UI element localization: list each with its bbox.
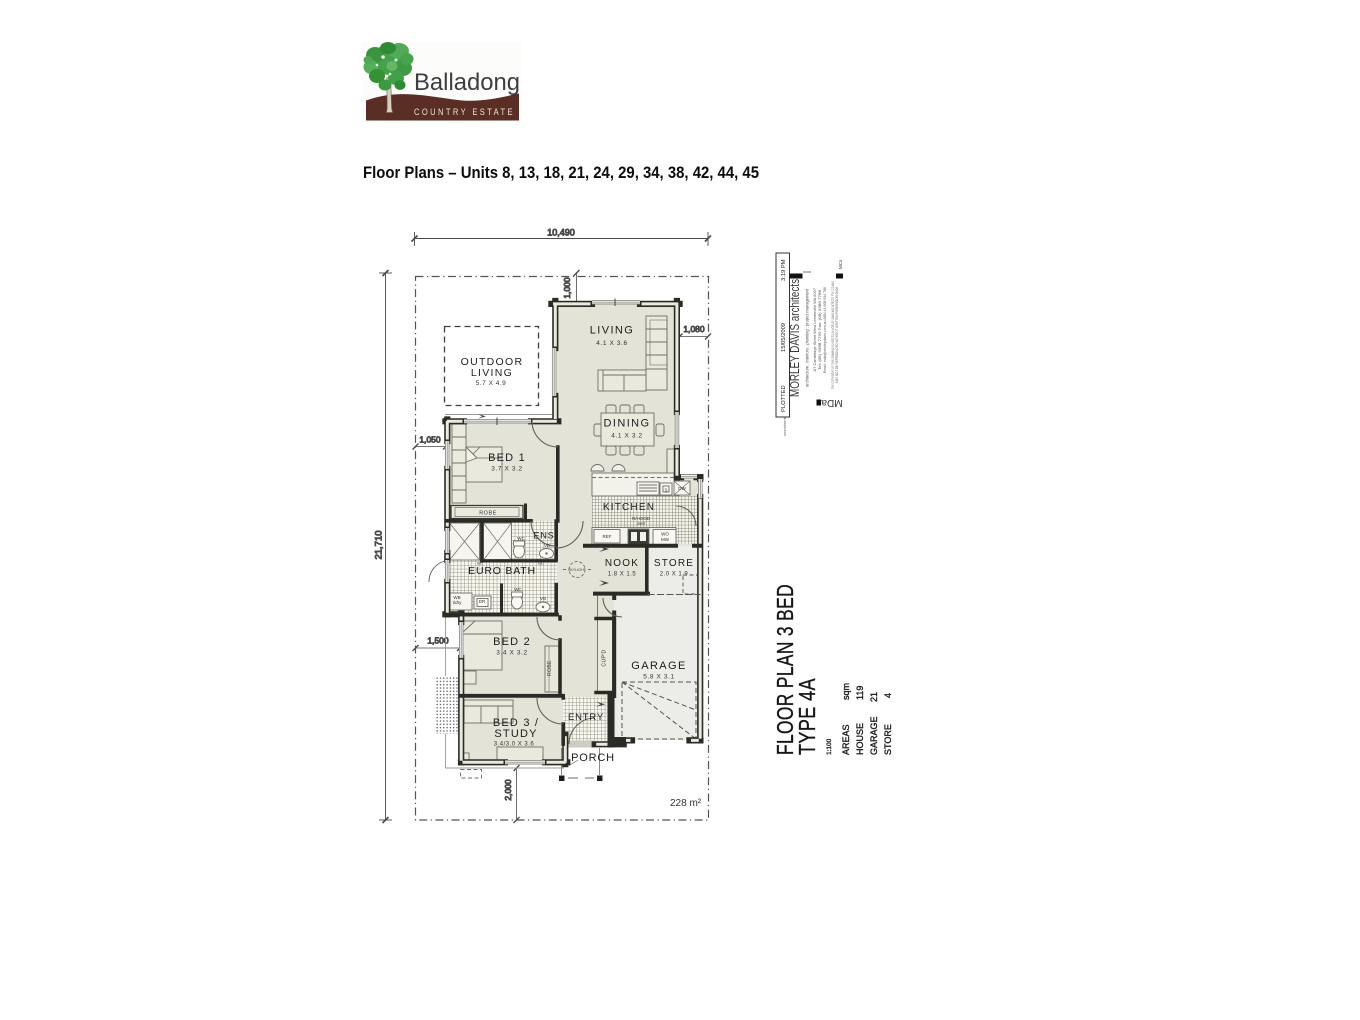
svg-text:MAY NOT BE REPRODUCED WITHOUT: MAY NOT BE REPRODUCED WITHOUT WRITTEN PE… [835,287,839,383]
svg-text:GARAGE: GARAGE [631,660,686,672]
svg-text:PLOTTED: PLOTTED [781,385,787,412]
svg-text:VB: VB [540,596,546,601]
svg-text:S: S [664,488,667,493]
svg-text:SKYLIGHT: SKYLIGHT [568,568,587,572]
svg-text:BC: BC [477,561,483,566]
svg-text:BED 2: BED 2 [493,636,531,648]
svg-text:over: over [637,521,646,526]
svg-text:4.1 X 3.6: 4.1 X 3.6 [596,340,627,347]
svg-text:5.8 X 3.1: 5.8 X 3.1 [643,674,674,681]
svg-text:KITCHEN: KITCHEN [603,502,655,513]
svg-text:1:100: 1:100 [826,738,833,755]
svg-text:Floor Plans – Units 8, 13, 18,: Floor Plans – Units 8, 13, 18, 21, 24, 2… [363,163,759,182]
svg-text:5.7 X 4.9: 5.7 X 4.9 [476,380,507,387]
svg-text:DW: DW [678,486,686,491]
svg-text:DINING: DINING [604,418,651,430]
svg-text:t/dry: t/dry [453,600,463,605]
svg-text:WO: WO [661,532,669,537]
svg-text:GARAGE: GARAGE [869,716,879,755]
svg-text:MW: MW [661,537,670,542]
svg-text:3.4 X 3.2: 3.4 X 3.2 [496,650,527,657]
svg-text:VB: VB [544,543,550,548]
svg-text:4.1 X 3.2: 4.1 X 3.2 [611,433,642,440]
svg-text:NOOK: NOOK [605,558,639,569]
svg-text:amendment: amendment [783,417,787,436]
svg-text:10,490: 10,490 [547,228,575,238]
svg-text:REF: REF [603,534,612,539]
svg-text:119: 119 [855,686,865,700]
svg-text:2.0 X 1.9: 2.0 X 1.9 [660,572,689,578]
svg-text:BC: BC [538,561,544,566]
svg-text:3.7 X 3.2: 3.7 X 3.2 [491,466,522,473]
svg-text:STORE: STORE [883,724,893,755]
svg-text:LIVING: LIVING [471,367,513,379]
svg-text:TYPE 4A: TYPE 4A [794,678,820,755]
svg-text:4: 4 [883,693,893,698]
svg-text:DR: DR [479,599,486,604]
svg-text:2,000: 2,000 [503,779,513,801]
svg-text:COUNTRY ESTATE: COUNTRY ESTATE [414,107,515,118]
svg-text:BED 1: BED 1 [488,452,526,464]
svg-text:MCs: MCs [838,259,843,269]
svg-text:WC: WC [514,587,522,592]
svg-text:MORLEY DAVIS architects: MORLEY DAVIS architects [788,279,802,397]
svg-text:1,050: 1,050 [419,435,441,445]
svg-text:WC: WC [517,536,525,541]
svg-text:EURO BATH: EURO BATH [468,565,536,577]
svg-text:1,000: 1,000 [562,277,572,299]
svg-text:STUDY: STUDY [494,728,537,740]
svg-text:AREAS: AREAS [841,724,851,755]
svg-text:228 m²: 228 m² [670,798,702,809]
svg-text:ENTRY: ENTRY [568,712,604,723]
svg-text:ROBE: ROBE [479,511,497,517]
svg-text:CUP'D: CUP'D [602,649,608,666]
svg-text:21: 21 [869,692,879,702]
svg-text:3.4/3.0 X 3.6: 3.4/3.0 X 3.6 [494,742,535,748]
svg-text:Balladong: Balladong [414,69,520,96]
svg-text:sqm: sqm [841,683,851,700]
svg-text:architecture . interiors .: architecture . interiors . planning . pr… [805,288,810,387]
svg-text:ROBE: ROBE [547,660,553,676]
svg-text:15/05/2009: 15/05/2009 [781,323,787,352]
svg-text:Email: mda@morleydavis.com.au: Email: mda@morleydavis.com.au ABN 41 008… [822,286,827,373]
svg-text:MDa: MDa [821,397,843,408]
svg-text:1,080: 1,080 [683,324,705,334]
svg-text:ENS: ENS [534,531,555,541]
svg-text:1.8 X 1.5: 1.8 X 1.5 [608,572,637,578]
svg-text:STORE: STORE [654,558,694,569]
svg-text:HOUSE: HOUSE [855,723,865,755]
svg-text:LIVING: LIVING [590,325,634,337]
svg-text:3:19 PM: 3:19 PM [781,259,787,281]
svg-text:21,710: 21,710 [374,530,385,559]
svg-text:PORCH: PORCH [571,752,615,764]
